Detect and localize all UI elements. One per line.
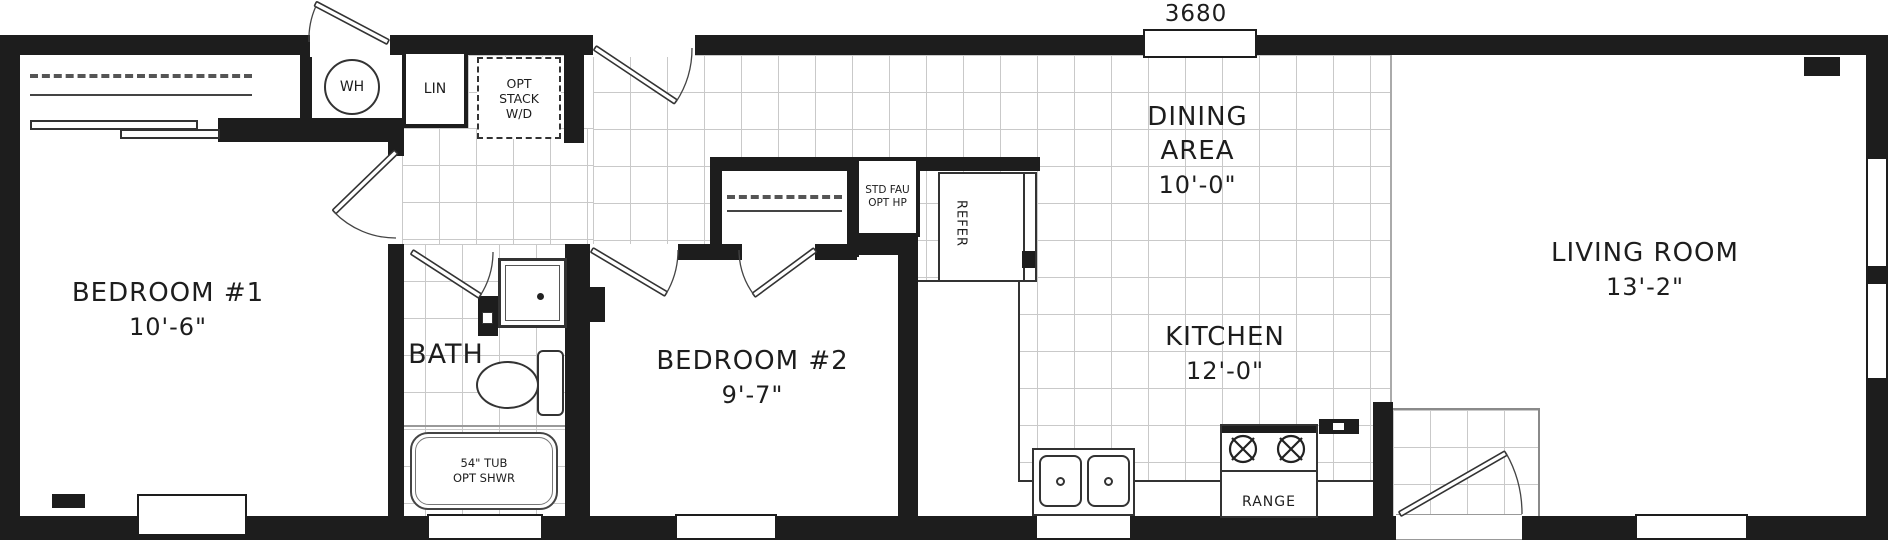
washer-dryer-opt: OPT STACK W/D	[477, 57, 561, 139]
wall-hall-band	[218, 118, 404, 142]
living-dim: 13'-2"	[1534, 270, 1756, 304]
counter-appliance-box	[1319, 419, 1359, 434]
entry-door-opening[interactable]	[1396, 514, 1522, 540]
floor-plan: WH LIN OPT STACK W/D STD FAU OPT HP REFE…	[0, 0, 1888, 540]
dining-line2: AREA	[1115, 134, 1280, 168]
bed2-closet-rod	[727, 195, 842, 199]
window-bedroom1	[137, 494, 247, 536]
bedroom1-door-leaf	[333, 150, 398, 213]
counter-appliance-detail	[1333, 423, 1344, 430]
window-dining-top	[1143, 29, 1257, 58]
shower-inner	[505, 265, 560, 321]
bath-vanity	[478, 296, 498, 336]
wall-top	[0, 35, 1888, 55]
wall-left	[0, 35, 20, 540]
bed1-floor-register	[52, 494, 85, 508]
sink-drain-left	[1056, 477, 1065, 486]
model-number: 3680	[1150, 1, 1242, 27]
floor-tile-entry	[1393, 408, 1540, 516]
wd-line2: STACK	[499, 91, 539, 106]
linen-closet: LIN	[402, 50, 468, 128]
window-living-right-1	[1866, 157, 1888, 268]
living-label: LIVING ROOM 13'-2"	[1534, 236, 1756, 304]
bed2-closet-shelf	[727, 210, 842, 212]
model-number-text: 3680	[1165, 1, 1228, 27]
refrigerator: REFER	[938, 172, 1037, 282]
kitchen-name: KITCHEN	[1125, 320, 1325, 354]
bedroom1-door-arc	[334, 212, 396, 238]
dining-line1: DINING	[1115, 100, 1280, 134]
fau-line1: STD FAU	[865, 184, 909, 197]
dining-label: DINING AREA 10'-0"	[1115, 100, 1280, 202]
kitchen-sink	[1032, 448, 1135, 516]
furnace-closet: STD FAU OPT HP	[855, 157, 920, 237]
window-living-right-2	[1866, 282, 1888, 380]
bath-vanity-sink	[482, 312, 493, 324]
window-kitchen	[1035, 514, 1132, 540]
range-cooktop	[1220, 424, 1318, 472]
wall-kitchen-living	[1373, 402, 1393, 518]
water-heater: WH	[324, 59, 380, 115]
bedroom1-dim: 10'-6"	[58, 310, 278, 344]
wd-line3: W/D	[506, 106, 532, 121]
bath-divider-line	[404, 425, 565, 427]
wall-closet-left	[710, 157, 722, 257]
dining-dim: 10'-0"	[1115, 168, 1280, 202]
toilet-tank	[537, 350, 564, 416]
bathtub-inner	[415, 437, 553, 505]
living-name: LIVING ROOM	[1534, 236, 1756, 270]
back-door-opening[interactable]	[593, 33, 695, 57]
kitchen-label: KITCHEN 12'-0"	[1125, 320, 1325, 388]
bed1-closet-shelf	[30, 94, 252, 96]
sink-basin-left	[1039, 455, 1082, 507]
wall-bath-left	[388, 244, 404, 518]
sink-drain-right	[1104, 477, 1113, 486]
wall-bed1-closet-right	[300, 55, 312, 125]
bath-label: BATH	[398, 338, 494, 372]
kitchen-dim: 12'-0"	[1125, 354, 1325, 388]
bath-name: BATH	[398, 338, 494, 372]
bedroom2-label: BEDROOM #2 9'-7"	[640, 344, 865, 412]
bedroom2-name: BEDROOM #2	[640, 344, 865, 378]
window-living-bottom	[1635, 514, 1748, 540]
refrigerator-handle	[1022, 251, 1035, 268]
front-door-opening[interactable]	[310, 33, 390, 57]
bedroom1-label: BEDROOM #1 10'-6"	[58, 276, 278, 344]
window-bedroom2	[675, 514, 777, 540]
wall-bed2-right	[898, 237, 918, 518]
sink-basin-right	[1087, 455, 1130, 507]
wall-bed2-door-stub	[588, 287, 605, 322]
refrigerator-label: REFER	[954, 189, 969, 259]
linen-label: LIN	[424, 81, 446, 97]
shower-drain	[537, 293, 544, 300]
wall-bath-bed2	[565, 244, 590, 518]
bed1-closet-rod	[30, 74, 252, 78]
kitchen-side-counter[interactable]	[918, 280, 1020, 482]
wd-line1: OPT	[506, 76, 531, 91]
tile-edge-line	[1390, 55, 1392, 404]
range-back-strip	[1222, 426, 1316, 433]
range-label: RANGE	[1242, 494, 1296, 510]
wall-bottom	[0, 516, 1888, 540]
floor-tile-hall	[402, 128, 593, 244]
wall-bed1-door-head	[388, 140, 404, 156]
bed1-closet-slider-2[interactable]	[120, 129, 220, 139]
living-wall-register	[1804, 57, 1840, 76]
fau-line2: OPT HP	[868, 197, 907, 210]
wall-wd-right	[564, 35, 584, 143]
bedroom1-name: BEDROOM #1	[58, 276, 278, 310]
bathtub: 54" TUB OPT SHWR	[410, 432, 558, 510]
range-body: RANGE	[1220, 470, 1318, 518]
window-bath	[427, 514, 543, 540]
water-heater-label: WH	[340, 79, 364, 95]
bedroom2-dim: 9'-7"	[640, 378, 865, 412]
shower	[498, 258, 567, 328]
